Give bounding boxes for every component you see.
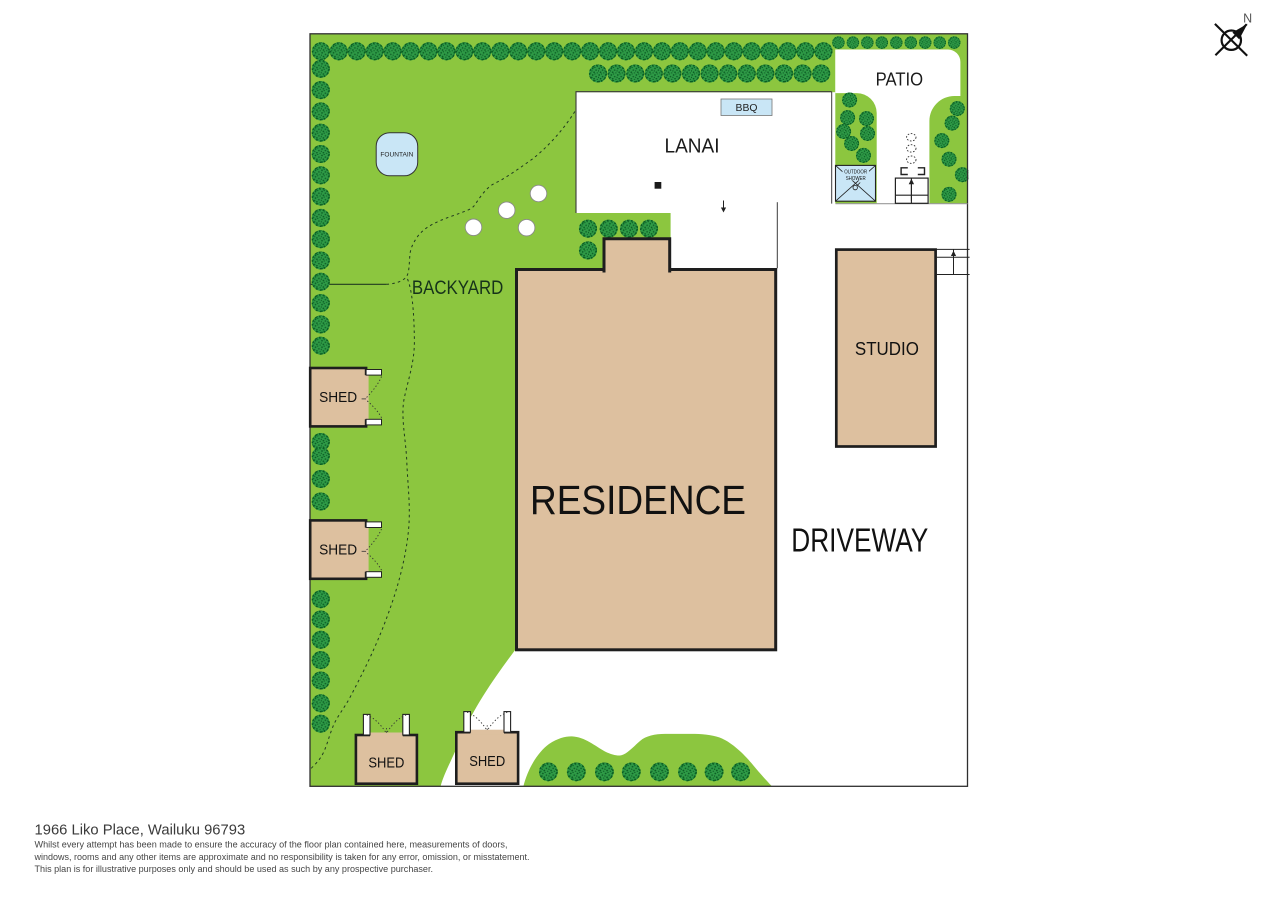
svg-text:SHOWER: SHOWER <box>846 176 866 182</box>
svg-text:SHED: SHED <box>368 754 404 771</box>
svg-text:windows, rooms and any other i: windows, rooms and any other items are a… <box>33 852 529 862</box>
svg-text:RESIDENCE: RESIDENCE <box>530 477 746 523</box>
svg-text:SHED: SHED <box>469 753 505 770</box>
svg-text:BBQ: BBQ <box>736 103 758 114</box>
svg-text:STUDIO: STUDIO <box>855 339 919 359</box>
svg-text:1966 Liko Place, Wailuku 96793: 1966 Liko Place, Wailuku 96793 <box>35 822 246 838</box>
svg-text:This plan is for illustrative: This plan is for illustrative purposes o… <box>35 864 434 874</box>
svg-text:PATIO: PATIO <box>876 70 924 90</box>
svg-text:FOUNTAIN: FOUNTAIN <box>380 152 413 159</box>
svg-text:N: N <box>1243 12 1252 26</box>
svg-text:DRIVEWAY: DRIVEWAY <box>791 522 928 559</box>
svg-text:OUTDOOR: OUTDOOR <box>844 169 867 175</box>
svg-text:Whilst every attempt has been: Whilst every attempt has been made to en… <box>35 840 508 850</box>
svg-text:BACKYARD: BACKYARD <box>412 278 504 299</box>
svg-text:SHED: SHED <box>319 390 357 406</box>
svg-text:SHED: SHED <box>319 543 357 559</box>
svg-text:LANAI: LANAI <box>665 136 720 158</box>
